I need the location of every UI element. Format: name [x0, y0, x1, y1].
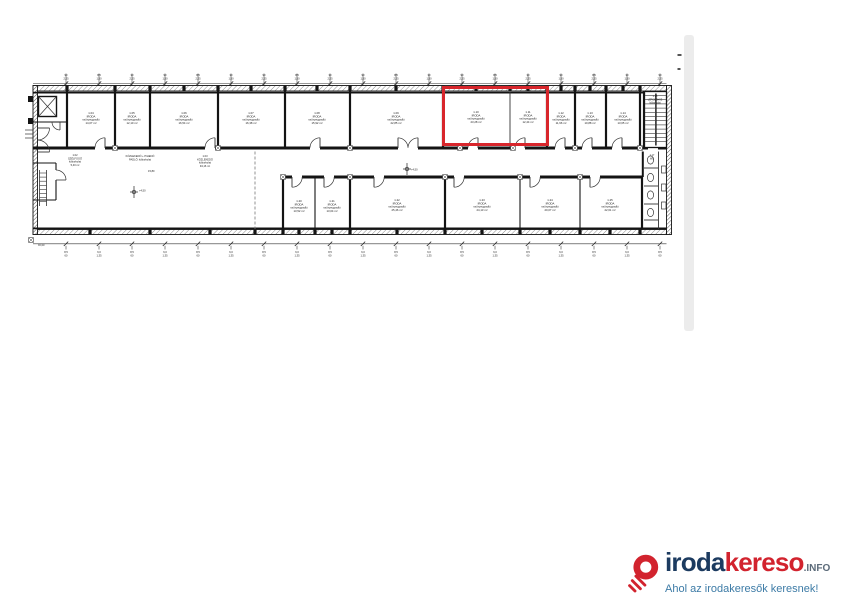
room-label: 1.04IRODAszőnyegpadló14,07 m²: [82, 111, 100, 125]
top-tick-label: 2,25: [261, 77, 267, 81]
top-tick-label: 2,25: [393, 77, 399, 81]
top-tick-label: 8,5: [295, 73, 299, 77]
top-tick-label: 1,50: [162, 77, 168, 81]
room-label: 1.10IRODAszőnyegpadló23,28 m²: [467, 110, 485, 124]
room-label: 1.09IRODAszőnyegpadló22,85 m²: [387, 111, 405, 125]
top-tick-label: 1,50: [360, 77, 366, 81]
bottom-tick-label: 6,0: [295, 250, 299, 254]
room-label: 1.25IRODAszőnyegpadló22,61 m²: [601, 198, 619, 212]
bottom-tick-label: 6,0: [229, 250, 233, 254]
room-label: 1.22IRODAszőnyegpadló25,46 m²: [388, 198, 406, 212]
bottom-tick-label: 8,5: [328, 250, 332, 254]
top-tick-label: 8,5: [196, 73, 200, 77]
top-tick-label: 8,5: [394, 73, 398, 77]
top-tick-label: 90: [461, 73, 464, 77]
top-tick-label: 2,25: [195, 77, 201, 81]
top-tick-label: 8,5: [592, 73, 596, 77]
brand-wordmark: irodakereso.INFO: [665, 549, 830, 582]
bottom-tick-label: 60: [65, 253, 68, 257]
level-annotation: +4,50: [139, 189, 146, 193]
top-tick-label: 2,25: [327, 77, 333, 81]
room-label: 1.13IRODAszőnyegpadló10,88 m²: [581, 111, 599, 125]
top-tick-label: 1,50: [294, 77, 300, 81]
top-tick-label: 30: [230, 73, 233, 77]
top-tick-label: 90: [263, 73, 266, 77]
top-dimension-band: 902,258,51,50302,25901,508,52,25301,5090…: [33, 73, 667, 87]
misc-plan-details: [25, 54, 682, 206]
bottom-tick-label: 1,35: [228, 253, 234, 257]
top-tick-label: 8,5: [97, 73, 101, 77]
top-tick-label: 1,50: [624, 77, 630, 81]
bottom-tick-label: 8,5: [196, 250, 200, 254]
top-tick-label: 1,50: [492, 77, 498, 81]
wc-fixtures: [644, 152, 666, 230]
bottom-tick-label: 8,5: [262, 250, 266, 254]
doors-and-junctions: [29, 128, 658, 242]
bottom-tick-label: 6,0: [361, 250, 365, 254]
bottom-tick-label: 60: [527, 253, 530, 257]
bottom-tick-label: 6,0: [427, 250, 431, 254]
logo-tagline: Ahol az irodakeresők keresnek!: [665, 583, 830, 595]
logo-pin-icon: [626, 552, 662, 594]
bottom-tick-label: 60: [461, 253, 464, 257]
top-tick-label: 90: [362, 73, 365, 77]
room-label: 1.21IRODAszőnyegpadló13,04 m²: [323, 199, 341, 213]
top-tick-label: 1,50: [558, 77, 564, 81]
bottom-tick-label: 8,5: [394, 250, 398, 254]
room-label: 1.20IRODAszőnyegpadló13,52 m²: [290, 199, 308, 213]
floor-plan-drawing: 902,258,51,50302,25901,508,52,25301,5090…: [0, 0, 842, 595]
top-tick-label: 1,50: [426, 77, 432, 81]
bottom-tick-label: 8,5: [592, 250, 596, 254]
page: 902,258,51,50302,25901,508,52,25301,5090…: [0, 0, 842, 595]
room-label: 1.24IRODAszőnyegpadló20,07 m²: [541, 198, 559, 212]
bottom-tick-label: 8,5: [130, 250, 134, 254]
top-tick-label: 2,25: [63, 77, 69, 81]
bottom-tick-label: 1,35: [492, 253, 498, 257]
brand-iroda: iroda: [665, 547, 725, 577]
bottom-tick-label: 8,5: [460, 250, 464, 254]
irodakereso-logo[interactable]: irodakereso.INFO Ahol az irodakeresők ke…: [626, 549, 830, 595]
top-tick-label: 1,50: [228, 77, 234, 81]
bottom-tick-label: 60: [659, 253, 662, 257]
room-label: 1.17WC: [650, 154, 655, 160]
bottom-tick-label: 60: [329, 253, 332, 257]
bottom-tick-label: 8,5: [658, 250, 662, 254]
room-label: KÖZLEKEDŐ + PIHENŐPADLÓ: kőburkolat: [126, 153, 155, 161]
bottom-tick-label: 8,5: [64, 250, 68, 254]
level-annotation: ±0,00: [38, 243, 45, 247]
top-tick-label: 30: [329, 73, 332, 77]
top-tick-label: 2,25: [525, 77, 531, 81]
top-tick-label: 30: [131, 73, 134, 77]
bottom-tick-label: 60: [197, 253, 200, 257]
bottom-tick-label: 1,35: [558, 253, 564, 257]
room-label: 1.11IRODAszőnyegpadló12,44 m²: [519, 110, 537, 124]
level-annotation: 15,80: [148, 169, 155, 173]
top-tick-label: 2,25: [657, 77, 663, 81]
room-label: 1.02SZÉLFOGÓkőburkolat5,40 m²: [68, 153, 82, 167]
top-tick-label: 90: [659, 73, 662, 77]
top-tick-label: 90: [560, 73, 563, 77]
top-tick-label: 30: [428, 73, 431, 77]
top-tick-label: 8,5: [493, 73, 497, 77]
bottom-dimension-band: 8,5606,01,358,5606,01,358,5606,01,358,56…: [33, 242, 667, 258]
brand-info-suffix: .INFO: [804, 563, 831, 574]
top-tick-label: 2,25: [591, 77, 597, 81]
top-tick-label: 30: [527, 73, 530, 77]
bottom-tick-label: 8,5: [526, 250, 530, 254]
brand-kereso: kereso: [725, 547, 804, 577]
bottom-tick-label: 6,0: [625, 250, 629, 254]
top-tick-label: 2,25: [129, 77, 135, 81]
room-label: 1.07IRODAszőnyegpadló16,38 m²: [242, 111, 260, 125]
top-tick-label: 90: [164, 73, 167, 77]
bottom-tick-label: 1,35: [96, 253, 102, 257]
bottom-tick-label: 6,0: [493, 250, 497, 254]
level-annotation: +4,50: [411, 168, 418, 172]
room-label: 1.14IRODAszőnyegpadló13,65 m²: [614, 111, 632, 125]
bottom-tick-label: 1,35: [162, 253, 168, 257]
room-label: 1.23IRODAszőnyegpadló24,13 m²: [473, 198, 491, 212]
bottom-tick-label: 60: [395, 253, 398, 257]
bottom-tick-label: 6,0: [163, 250, 167, 254]
scrollbar[interactable]: [684, 35, 694, 331]
top-tick-label: 90: [65, 73, 68, 77]
room-label: 1.05IRODAszőnyegpadló12,10 m²: [123, 111, 141, 125]
bottom-tick-label: 1,35: [294, 253, 300, 257]
bottom-tick-label: 1,35: [624, 253, 630, 257]
bottom-tick-label: 60: [593, 253, 596, 257]
room-label: 1.03KÖZLEKEDŐkőburkolat94,16 m²: [197, 154, 213, 168]
top-tick-label: 1,50: [96, 77, 102, 81]
bottom-tick-label: 6,0: [559, 250, 563, 254]
bottom-tick-label: 6,0: [97, 250, 101, 254]
logo-text: irodakereso.INFO Ahol az irodakeresők ke…: [665, 549, 830, 595]
room-label: 1.08IRODAszőnyegpadló15,92 m²: [308, 111, 326, 125]
bottom-tick-label: 60: [263, 253, 266, 257]
bottom-tick-label: 1,35: [360, 253, 366, 257]
room-label: 1.12IRODAszőnyegpadló11,96 m²: [552, 111, 570, 125]
bottom-tick-label: 1,35: [426, 253, 432, 257]
top-tick-label: 30: [626, 73, 629, 77]
bottom-tick-label: 60: [131, 253, 134, 257]
room-label: 1.06IRODAszőnyegpadló16,54 m²: [175, 111, 193, 125]
top-tick-label: 2,25: [459, 77, 465, 81]
